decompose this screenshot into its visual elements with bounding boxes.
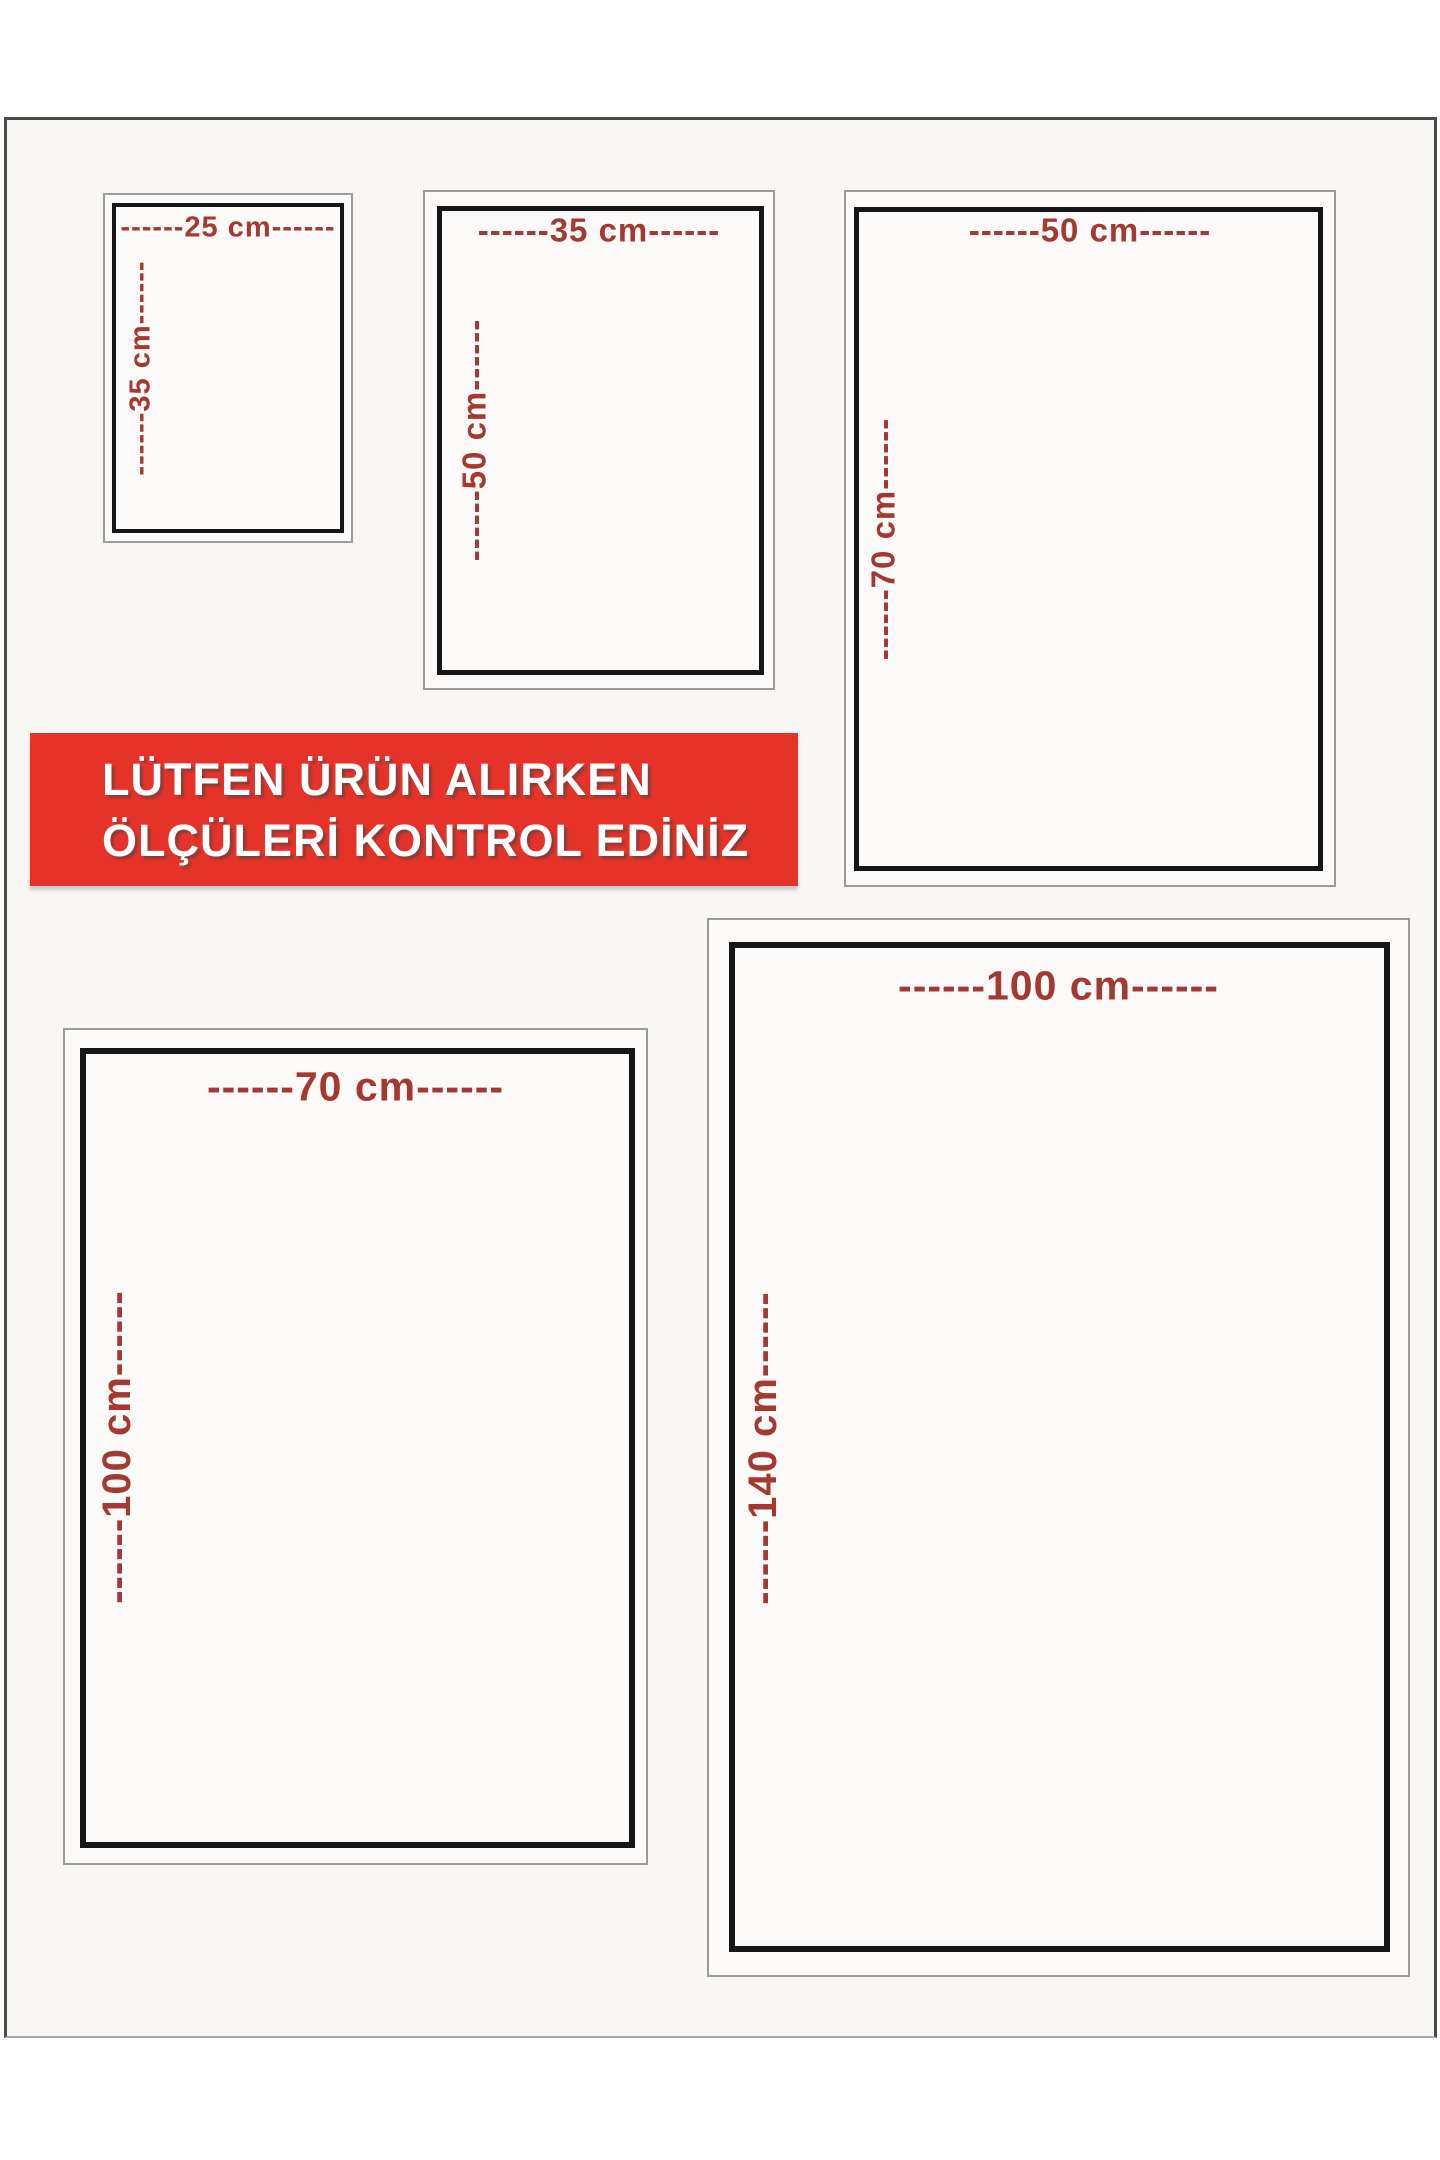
- size-box-35x50: ------35 cm------ ------50 cm------: [423, 190, 775, 690]
- size-box-100x140: ------100 cm------ ------140 cm------: [707, 918, 1410, 1977]
- width-dimension-label: ------100 cm------: [898, 966, 1219, 1007]
- size-box-50x70-inner-frame: [854, 207, 1323, 871]
- size-box-25x35: ------25 cm------ ------35 cm------: [103, 193, 353, 543]
- height-dimension-label: ------100 cm------: [97, 1290, 137, 1604]
- height-dimension-label: ------35 cm------: [127, 260, 156, 475]
- size-box-50x70: ------50 cm------ ------70 cm------: [844, 190, 1336, 887]
- size-guide-image: ------25 cm------ ------35 cm------ ----…: [0, 0, 1440, 2160]
- size-box-100x140-inner-frame: [729, 942, 1390, 1952]
- warning-banner: LÜTFEN ÜRÜN ALIRKEN ÖLÇÜLERİ KONTROL EDİ…: [30, 733, 798, 886]
- height-dimension-label: ------140 cm------: [743, 1291, 783, 1605]
- height-dimension-label: ------50 cm------: [458, 319, 491, 561]
- size-box-70x100-inner-frame: [80, 1048, 635, 1848]
- width-dimension-label: ------50 cm------: [969, 214, 1211, 247]
- warning-banner-line1: LÜTFEN ÜRÜN ALIRKEN: [102, 749, 798, 810]
- warning-banner-line2: ÖLÇÜLERİ KONTROL EDİNİZ: [102, 810, 798, 871]
- width-dimension-label: ------25 cm------: [120, 214, 335, 243]
- width-dimension-label: ------35 cm------: [478, 214, 720, 247]
- size-box-70x100: ------70 cm------ ------100 cm------: [63, 1028, 648, 1865]
- height-dimension-label: ------70 cm------: [867, 417, 900, 659]
- width-dimension-label: ------70 cm------: [207, 1067, 504, 1108]
